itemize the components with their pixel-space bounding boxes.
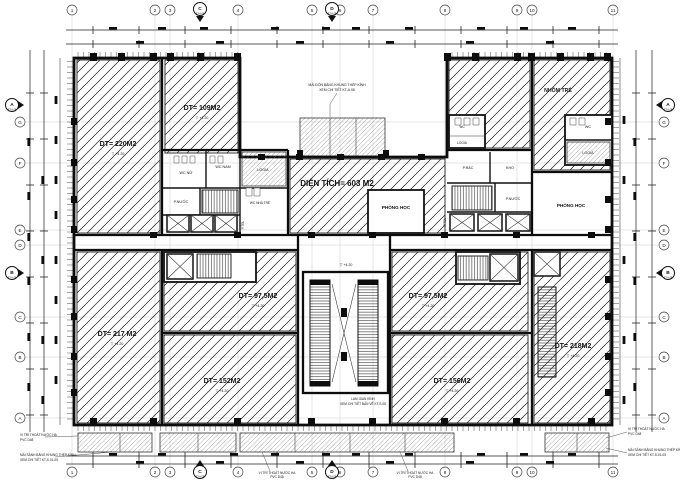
grid-bubble-left-e: E xyxy=(15,225,25,235)
grid-bubble-right-b: B xyxy=(659,352,669,362)
svg-text:4: 4 xyxy=(237,8,240,13)
awning-note-left-line1: MÁI SẢNH BẰNG KHUNG THÉP KÍNH xyxy=(20,452,76,457)
svg-text:KT-A.08: KT-A.08 xyxy=(8,109,17,112)
svg-text:3: 3 xyxy=(169,8,172,13)
svg-text:B: B xyxy=(662,355,665,360)
lam-gian-note-line1: LAM GIAN KÍNH xyxy=(351,397,375,401)
grid-bubble-right-d: D xyxy=(659,240,669,250)
awning-note-left-line2: XEM CHI TIẾT KT-S.01-05 xyxy=(20,457,58,462)
dt97-5-left-label: DT= 97,5M2 xyxy=(239,293,278,300)
dt217-level: ▽ +4.20 xyxy=(111,342,124,346)
floor-plan-drawing: DIỆN TÍCH= 603 M2 DT= 220M2 ▽ +4.20 DT= … xyxy=(0,0,680,480)
svg-text:C: C xyxy=(198,6,202,12)
dt220-level: ▽ +4.20 xyxy=(112,152,125,156)
stair-lower-right xyxy=(458,256,488,280)
grid-bubble-top-3: 3 xyxy=(165,5,175,15)
grid-bubble-top-8: 8 xyxy=(440,5,450,15)
section-marker-d-top: D KT-A.08 xyxy=(326,3,339,23)
grid-bubble-right-c: C xyxy=(659,312,669,322)
svg-text:8: 8 xyxy=(444,470,447,475)
dt109-label: DT= 109M2 xyxy=(184,105,221,112)
grid-bubble-bottom-3: 3 xyxy=(165,467,175,477)
grid-bubble-right-a: A xyxy=(659,413,669,423)
svg-text:4: 4 xyxy=(237,470,240,475)
drain-note-left-line1: VỊ TRÍ THOÁT NƯỚC HA xyxy=(20,432,58,437)
drain-note-center2-line2: PVC D48 xyxy=(408,475,422,479)
grid-bubble-left-g: G xyxy=(15,117,25,127)
svg-text:G: G xyxy=(662,120,666,125)
grid-bubbles-bottom: 1 2 3 4 5 6 7 8 9 10 11 xyxy=(67,467,618,477)
svg-text:5: 5 xyxy=(311,470,314,475)
svg-text:G: G xyxy=(18,120,22,125)
grid-bubble-right-f: F xyxy=(659,158,669,168)
logia-hall-block-label: LOGIA xyxy=(457,141,468,145)
dt217-label: DT= 217 M2 xyxy=(98,331,137,338)
wc-nu-label: WC NỮ xyxy=(180,170,193,175)
svg-text:KT-A.08: KT-A.08 xyxy=(328,476,337,479)
svg-text:D: D xyxy=(330,6,334,12)
svg-text:8: 8 xyxy=(444,8,447,13)
dt109-level: ▽ +4.20 xyxy=(196,116,209,120)
entrance-canopy-top xyxy=(300,118,385,156)
svg-text:B: B xyxy=(10,270,14,276)
escalator-right xyxy=(358,280,378,386)
svg-text:F: F xyxy=(663,161,666,166)
grid-bubble-left-a: A xyxy=(15,413,25,423)
svg-text:5: 5 xyxy=(311,8,314,13)
room-phong-hoc-left xyxy=(368,190,424,233)
p-nuoc-right-label: P.NƯỚC xyxy=(506,196,521,201)
wc-nha-tre-label: WC NHÀ TRẺ xyxy=(250,200,270,205)
dt97-5-left-level: ▽ +4.20 xyxy=(252,304,265,308)
svg-text:B: B xyxy=(666,270,670,276)
svg-text:A: A xyxy=(666,102,670,108)
grid-bubble-bottom-5: 5 xyxy=(307,467,317,477)
svg-text:KT-A.08: KT-A.08 xyxy=(664,109,673,112)
svg-text:D: D xyxy=(330,469,334,475)
drain-note-right-line1: VỊ TRÍ THOÁT NƯỚC HA xyxy=(628,426,666,431)
grid-bubble-bottom-1: 1 xyxy=(67,467,77,477)
svg-text:1: 1 xyxy=(71,8,74,13)
svg-text:E: E xyxy=(662,228,665,233)
grid-bubble-top-7: 7 xyxy=(368,5,378,15)
grid-bubble-left-c: C xyxy=(15,312,25,322)
dt152-level: ▽ +4.20 xyxy=(216,389,229,393)
svg-text:F: F xyxy=(19,161,22,166)
svg-text:B: B xyxy=(18,355,21,360)
svg-text:7: 7 xyxy=(372,8,375,13)
grid-bubble-right-e: E xyxy=(659,225,669,235)
escalator-left xyxy=(310,280,330,386)
svg-text:10: 10 xyxy=(529,470,535,475)
elevator-lower-left xyxy=(167,254,193,279)
stair-right-core xyxy=(452,186,492,210)
svg-text:11: 11 xyxy=(611,470,616,475)
grid-bubble-bottom-8: 8 xyxy=(440,467,450,477)
drain-note-center1-line2: PVC D48 xyxy=(270,475,284,479)
awning-note-right-line2: XEM CHI TIẾT KT-S.01-05 xyxy=(628,452,666,457)
svg-text:KT-A.08: KT-A.08 xyxy=(8,277,17,280)
svg-text:2: 2 xyxy=(154,470,157,475)
awning-canopies-bottom xyxy=(78,433,609,452)
louver-strip-right xyxy=(538,287,556,377)
grid-bubble-top-10: 10 xyxy=(527,5,537,15)
escalator-level: ▽ +4.20 xyxy=(340,263,353,267)
grid-bubble-left-f: F xyxy=(15,158,25,168)
p-rac-label: P.RÁC xyxy=(463,166,474,170)
svg-text:KT-A.08: KT-A.08 xyxy=(196,476,205,479)
stair-lower-left xyxy=(197,254,231,278)
svg-text:A: A xyxy=(10,102,14,108)
grid-bubble-bottom-11: 11 xyxy=(608,467,618,477)
elevator-bank-right xyxy=(450,214,530,231)
awning-note-right-line1: MÁI SẢNH BẰNG KHUNG THÉP KÍNH xyxy=(628,447,680,452)
svg-text:9: 9 xyxy=(516,470,519,475)
stair-left-core xyxy=(202,190,238,213)
dt218-label: DT= 218M2 xyxy=(555,343,592,350)
phong-hoc-right-label: PHÒNG HỌC xyxy=(557,201,586,208)
kho-label: KHO xyxy=(506,166,514,170)
dt152-label: DT= 152M2 xyxy=(204,378,241,385)
p-tdl-left-label: P.TĐL xyxy=(241,220,245,229)
svg-text:7: 7 xyxy=(372,470,375,475)
svg-text:KT-A.08: KT-A.08 xyxy=(196,13,205,16)
dt220-label: DT= 220M2 xyxy=(100,141,137,148)
canopy-note-line2: XEM CHI TIẾT KT-A.08 xyxy=(319,87,355,92)
svg-text:6: 6 xyxy=(339,470,342,475)
grid-bubble-left-d: D xyxy=(15,240,25,250)
grid-bubble-right-g: G xyxy=(659,117,669,127)
grid-bubble-top-5: 5 xyxy=(307,5,317,15)
wc-hall-block-label: WC xyxy=(459,125,465,129)
svg-text:2: 2 xyxy=(154,8,157,13)
canopy-note-line1: MÁI ĐÓN BẰNG KHUNG THÉP KÍNH xyxy=(308,82,366,87)
drain-note-right-line2: PVC D48 xyxy=(628,432,642,436)
elevator-lower-right xyxy=(490,254,518,281)
section-marker-a-right: A KT-A.08 xyxy=(656,99,675,112)
phong-hoc-left-label: PHÒNG HỌC xyxy=(382,203,411,210)
grid-bubble-bottom-7: 7 xyxy=(368,467,378,477)
grid-bubble-top-4: 4 xyxy=(233,5,243,15)
section-marker-b-right: B KT-A.08 xyxy=(656,267,675,280)
p-tdl-right-label: P.TĐL xyxy=(443,217,447,226)
p-nuoc-left-label: P.NƯỚC xyxy=(174,199,189,204)
wc-nam-label: WC NAM xyxy=(215,165,230,169)
svg-text:3: 3 xyxy=(169,470,172,475)
svg-text:E: E xyxy=(18,228,21,233)
dt156-label: DT= 156M2 xyxy=(434,378,471,385)
grid-bubble-top-11: 11 xyxy=(608,5,618,15)
section-marker-c-top: C KT-A.08 xyxy=(194,3,207,23)
svg-text:10: 10 xyxy=(529,8,535,13)
svg-text:6: 6 xyxy=(339,8,342,13)
svg-text:KT-A.08: KT-A.08 xyxy=(328,13,337,16)
svg-text:1: 1 xyxy=(71,470,74,475)
section-marker-a-left: A KT-A.08 xyxy=(6,99,25,112)
lam-gian-note-line2: XEM CHI TIẾT BẢN VẼ KT-S.08 xyxy=(340,401,386,406)
dt218-level: ▽ +4.20 xyxy=(567,354,580,358)
floor-plan-sheet: DIỆN TÍCH= 603 M2 DT= 220M2 ▽ +4.20 DT= … xyxy=(0,0,680,480)
hall-area-label: DIỆN TÍCH= 603 M2 xyxy=(300,179,374,188)
dt97-5-right-level: ▽ +4.20 xyxy=(422,304,435,308)
dt97-5-right-label: DT= 97,5M2 xyxy=(409,293,448,300)
section-marker-b-left: B KT-A.08 xyxy=(6,267,25,280)
grid-bubble-top-1: 1 xyxy=(67,5,77,15)
grid-bubble-bottom-9: 9 xyxy=(512,467,522,477)
drain-note-left-line2: PVC D48 xyxy=(20,438,34,442)
grid-bubble-top-9: 9 xyxy=(512,5,522,15)
grid-bubble-bottom-10: 10 xyxy=(527,467,537,477)
grid-bubble-bottom-4: 4 xyxy=(233,467,243,477)
grid-bubble-bottom-2: 2 xyxy=(150,467,160,477)
grid-bubbles-top: 1 2 3 4 5 6 7 8 9 10 11 xyxy=(67,5,618,15)
logia-right-wing-label: LOGIA xyxy=(582,151,594,155)
svg-text:9: 9 xyxy=(516,8,519,13)
wc-right-wing-label: WC xyxy=(585,125,591,129)
service-shaft xyxy=(534,252,560,276)
escalator-block xyxy=(303,272,388,393)
grid-bubble-top-2: 2 xyxy=(150,5,160,15)
elevator-bank-left xyxy=(167,215,237,232)
hatched-rooms xyxy=(77,60,610,423)
nhom-tre-label: NHÓM TRẺ xyxy=(544,86,572,94)
svg-text:C: C xyxy=(198,469,202,475)
svg-text:11: 11 xyxy=(611,8,616,13)
logia-left-label: LOGIA xyxy=(257,168,269,172)
svg-text:KT-A.08: KT-A.08 xyxy=(664,277,673,280)
grid-bubble-left-b: B xyxy=(15,352,25,362)
dt156-level: ▽ +4.20 xyxy=(446,389,459,393)
